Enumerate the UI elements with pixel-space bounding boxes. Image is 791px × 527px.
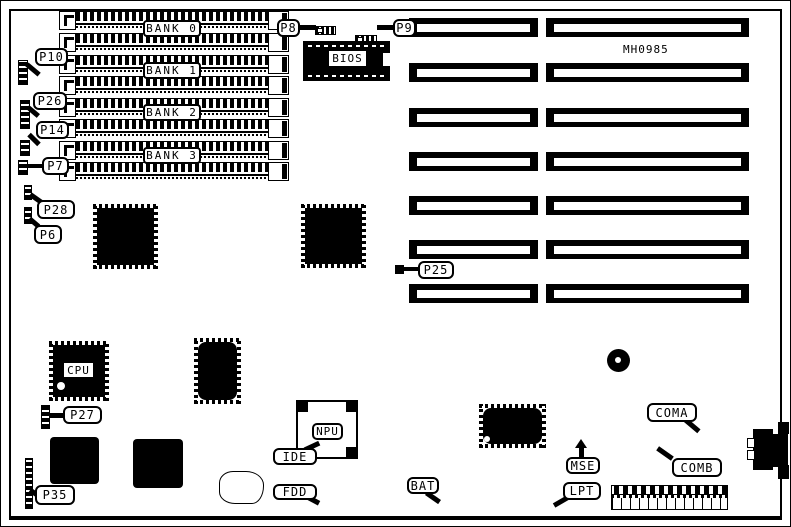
cpu-pin1-dot: [57, 382, 65, 390]
isa-slot: [409, 108, 538, 127]
bios-label: BIOS: [328, 50, 367, 67]
simm-right-bracket: [268, 119, 289, 138]
simm-socket: [59, 119, 289, 138]
callout-p8: P8: [277, 19, 300, 37]
chip: [479, 404, 546, 448]
simm-right-bracket: [268, 162, 289, 181]
bank1-label: BANK 1: [143, 62, 201, 79]
callout-fdd: FDD: [273, 484, 317, 500]
isa-slot: [409, 284, 538, 303]
isa-slot: [409, 63, 538, 82]
p8-pointer: [298, 25, 316, 30]
callout-bat: BAT: [407, 477, 439, 494]
cpu-label: CPU: [63, 362, 94, 378]
npu-corner: [298, 402, 308, 412]
npu-label: NPU: [312, 423, 343, 440]
isa-slot: [546, 18, 749, 37]
isa-slot: [546, 284, 749, 303]
simm-contacts: [76, 119, 268, 138]
power-connector: [611, 485, 728, 510]
isa-slot: [546, 63, 749, 82]
board-id-text: MH0985: [623, 43, 669, 56]
bios-dash-top: [308, 45, 385, 47]
npu-corner: [346, 402, 356, 412]
callout-coma: COMA: [647, 403, 697, 422]
keyboard-connector: [747, 422, 790, 479]
callout-p10: P10: [35, 48, 68, 66]
power-sockets: [611, 498, 728, 510]
callout-ide: IDE: [273, 448, 317, 465]
isa-slot: [409, 240, 538, 259]
keyboard-body: [753, 429, 773, 470]
callout-p25: P25: [418, 261, 454, 279]
p27-pointer: [49, 413, 64, 418]
isa-slot: [409, 196, 538, 215]
callout-p6: P6: [34, 225, 62, 244]
bios-chip: BIOS: [303, 41, 390, 81]
callout-p27: P27: [63, 406, 102, 424]
callout-comb: COMB: [672, 458, 722, 477]
simm-right-bracket: [268, 141, 289, 160]
callout-p35: P35: [35, 485, 75, 505]
bios-notch: [383, 53, 390, 66]
keyboard-step-top: [778, 422, 789, 434]
bank0-label: BANK 0: [143, 20, 201, 37]
jumper-p35: [25, 458, 33, 509]
keyboard-step-bottom: [778, 465, 789, 479]
callout-p7: P7: [42, 157, 69, 175]
qfp-chip: [301, 204, 366, 268]
bios-dash-bottom: [308, 75, 385, 77]
simm-right-bracket: [268, 76, 289, 95]
isa-slot: [409, 18, 538, 37]
simm-right-bracket: [268, 98, 289, 117]
simm-contacts: [76, 162, 268, 181]
chip: [50, 437, 99, 484]
p7-pointer: [27, 164, 43, 168]
keyboard-tab: [747, 450, 755, 460]
simm-socket: [59, 162, 289, 181]
chip: [133, 439, 183, 488]
bank3-label: BANK 3: [143, 147, 201, 164]
keyboard-tab: [747, 438, 755, 448]
qfp-chip: [93, 204, 158, 269]
power-pins: [611, 485, 728, 495]
callout-p14: P14: [36, 121, 69, 139]
callout-p9: P9: [393, 19, 416, 37]
isa-slot: [546, 152, 749, 171]
callout-mse: MSE: [566, 457, 600, 474]
reserved-area-outline: [219, 471, 264, 504]
isa-slot: [546, 240, 749, 259]
callout-p28: P28: [37, 200, 75, 219]
bank2-label: BANK 2: [143, 104, 201, 121]
chip-pin1-dot: [484, 436, 490, 442]
isa-slot: [546, 108, 749, 127]
motherboard-diagram: BANK 0 BANK 1 BANK 2 BANK 3 P8 P9 BIOS M…: [0, 0, 791, 527]
npu-corner: [346, 447, 356, 457]
isa-slot: [409, 152, 538, 171]
keyboard-body-right: [772, 434, 788, 467]
isa-slot: [546, 196, 749, 215]
simm-right-bracket: [268, 55, 289, 74]
jumper-p8: [315, 26, 336, 35]
mounting-hole-icon: [607, 349, 630, 372]
plcc-chip: [194, 338, 241, 404]
mse-pointer: [579, 444, 584, 458]
callout-lpt: LPT: [563, 482, 601, 500]
callout-p26: P26: [33, 92, 67, 110]
simm-left-bracket: [59, 11, 76, 30]
jumper-p14: [20, 140, 30, 156]
